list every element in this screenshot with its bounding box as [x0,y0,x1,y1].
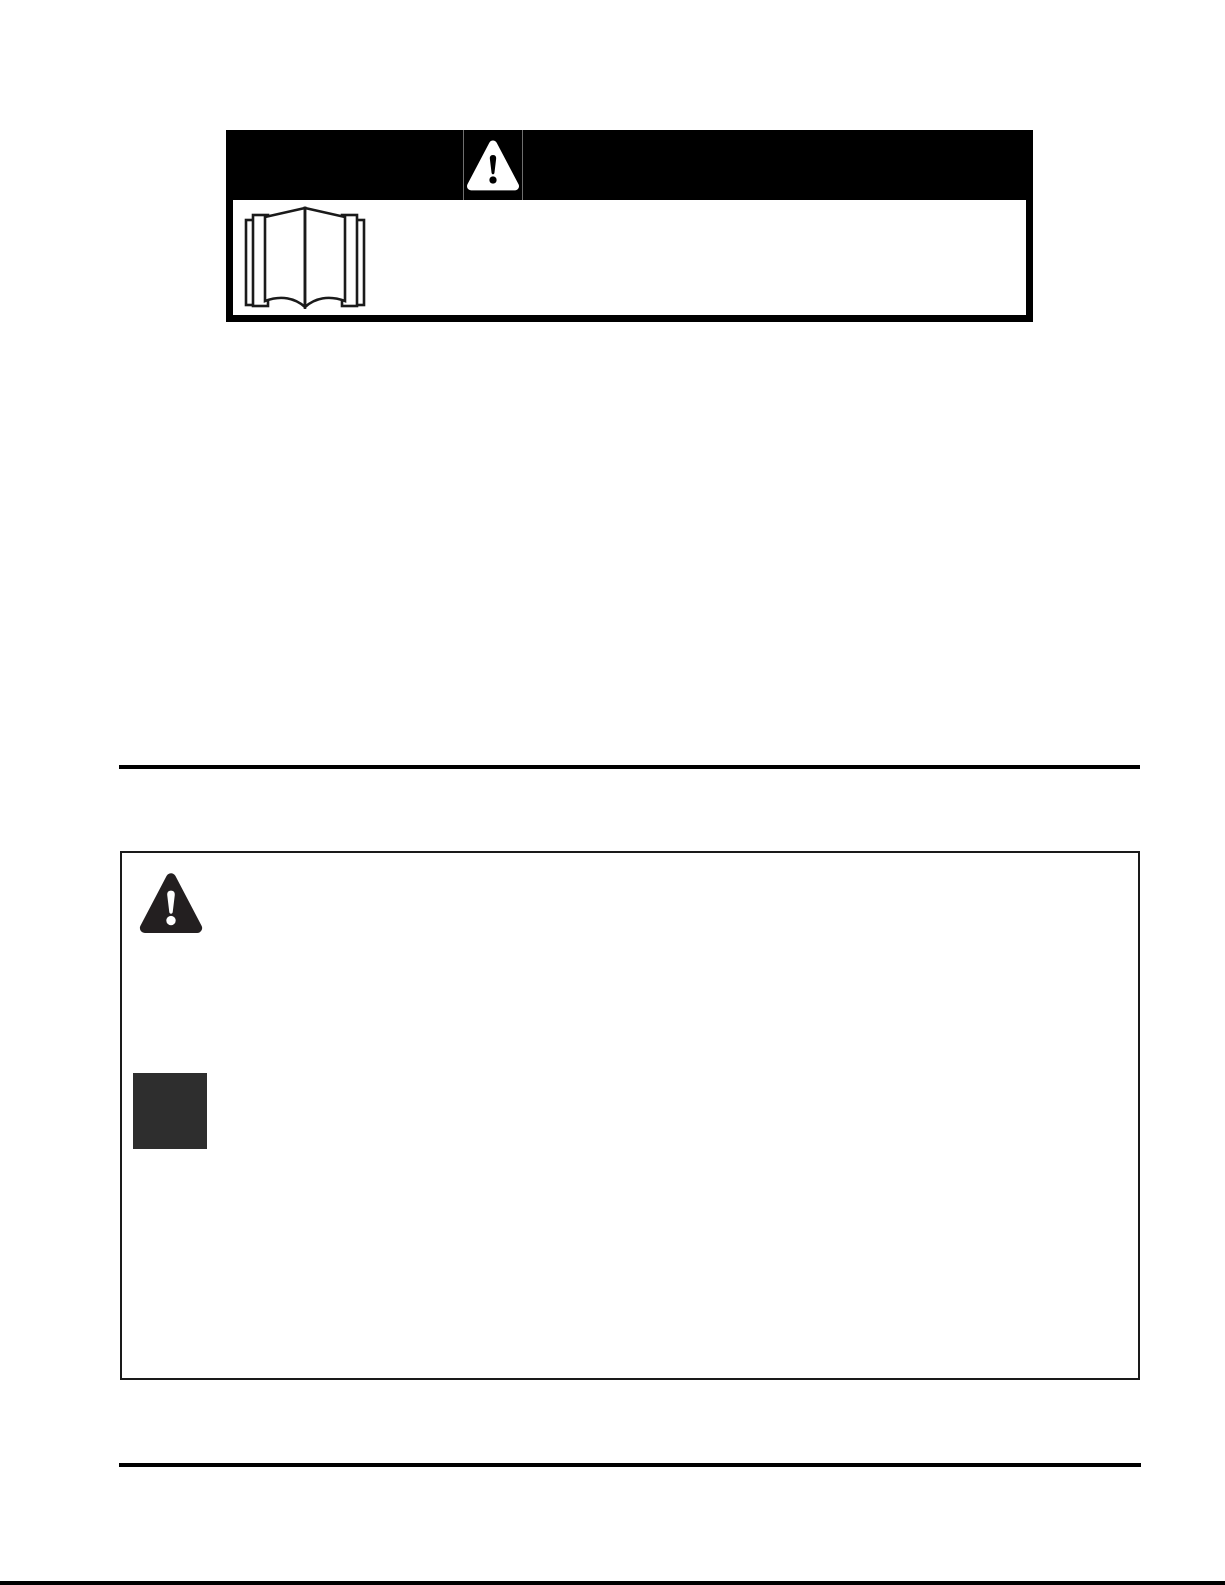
alert-banner-body [226,200,1033,322]
alert-banner [226,130,1033,322]
safety-statement-box [120,851,1140,1380]
document-page [0,0,1225,1585]
dark-square-marker [133,1073,207,1149]
open-book-fills [246,208,364,307]
warning-triangle-icon [136,872,206,938]
horizontal-rule-top [119,765,1140,769]
book-open-page-left [265,208,305,307]
page-bottom-edge [0,1581,1225,1585]
alert-banner-black-band [226,130,1033,200]
dark-square-fill [133,1073,207,1149]
open-book-strokes [246,208,364,307]
alert-banner-icon-cell [463,130,523,200]
warning-triangle-icon [467,138,519,196]
open-book-icon [244,203,366,309]
exclamation-dot [166,916,175,925]
horizontal-rule-bottom [119,1463,1141,1467]
exclamation-dot [489,176,496,183]
book-open-page-right [305,208,345,307]
